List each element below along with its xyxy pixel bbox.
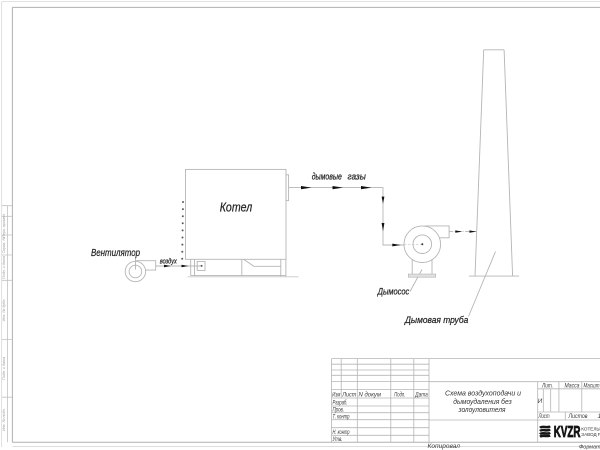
svg-text:Перв. примен.: Перв. примен.	[2, 213, 6, 238]
svg-text:Подп.: Подп.	[394, 392, 405, 398]
svg-text:ЗАВОД РЕ: ЗАВОД РЕ	[581, 432, 600, 437]
svg-text:Вентилятор: Вентилятор	[91, 248, 140, 259]
svg-text:N докум: N докум	[359, 392, 382, 398]
svg-text:КОТЕЛЬНЫ: КОТЕЛЬНЫ	[581, 426, 600, 431]
svg-text:Масса: Масса	[565, 384, 581, 390]
svg-text:газы: газы	[348, 171, 367, 181]
svg-text:Изм: Изм	[332, 392, 340, 398]
svg-text:воздух: воздух	[160, 257, 177, 266]
svg-text:Дата: Дата	[415, 392, 429, 398]
svg-text:Н. контр: Н. контр	[333, 430, 350, 436]
svg-text:Инв. № дубл.: Инв. № дубл.	[2, 299, 6, 322]
svg-text:Лист: Лист	[341, 392, 356, 398]
svg-text:Утв.: Утв.	[332, 437, 343, 443]
svg-text:Листов: Листов	[568, 414, 588, 420]
svg-text:золоуловителя: золоуловителя	[458, 405, 506, 414]
svg-text:Подп. и дата: Подп. и дата	[2, 357, 6, 380]
svg-text:Разраб.: Разраб.	[333, 401, 348, 407]
svg-text:Дымовая труба: Дымовая труба	[404, 315, 468, 325]
svg-text:Лит.: Лит.	[541, 384, 553, 390]
svg-text:дымовые: дымовые	[312, 171, 342, 181]
svg-text:Подп. и дата: Подп. и дата	[2, 256, 6, 279]
svg-text:Инв. № подл.: Инв. № подл.	[2, 408, 6, 431]
svg-text:Дымосос: Дымосос	[377, 287, 410, 297]
svg-text:Копировал: Копировал	[428, 444, 461, 450]
svg-text:Масшт: Масшт	[584, 384, 600, 390]
svg-text:Котел: Котел	[220, 201, 253, 215]
svg-text:Формат: Формат	[579, 445, 600, 450]
svg-text:И: И	[538, 398, 543, 405]
svg-text:Лист: Лист	[538, 414, 550, 420]
svg-text:Справ. №: Справ. №	[2, 237, 6, 254]
svg-text:Пров.: Пров.	[333, 407, 345, 413]
svg-text:KVZR: KVZR	[554, 424, 581, 441]
svg-text:Т. контр: Т. контр	[333, 414, 350, 420]
